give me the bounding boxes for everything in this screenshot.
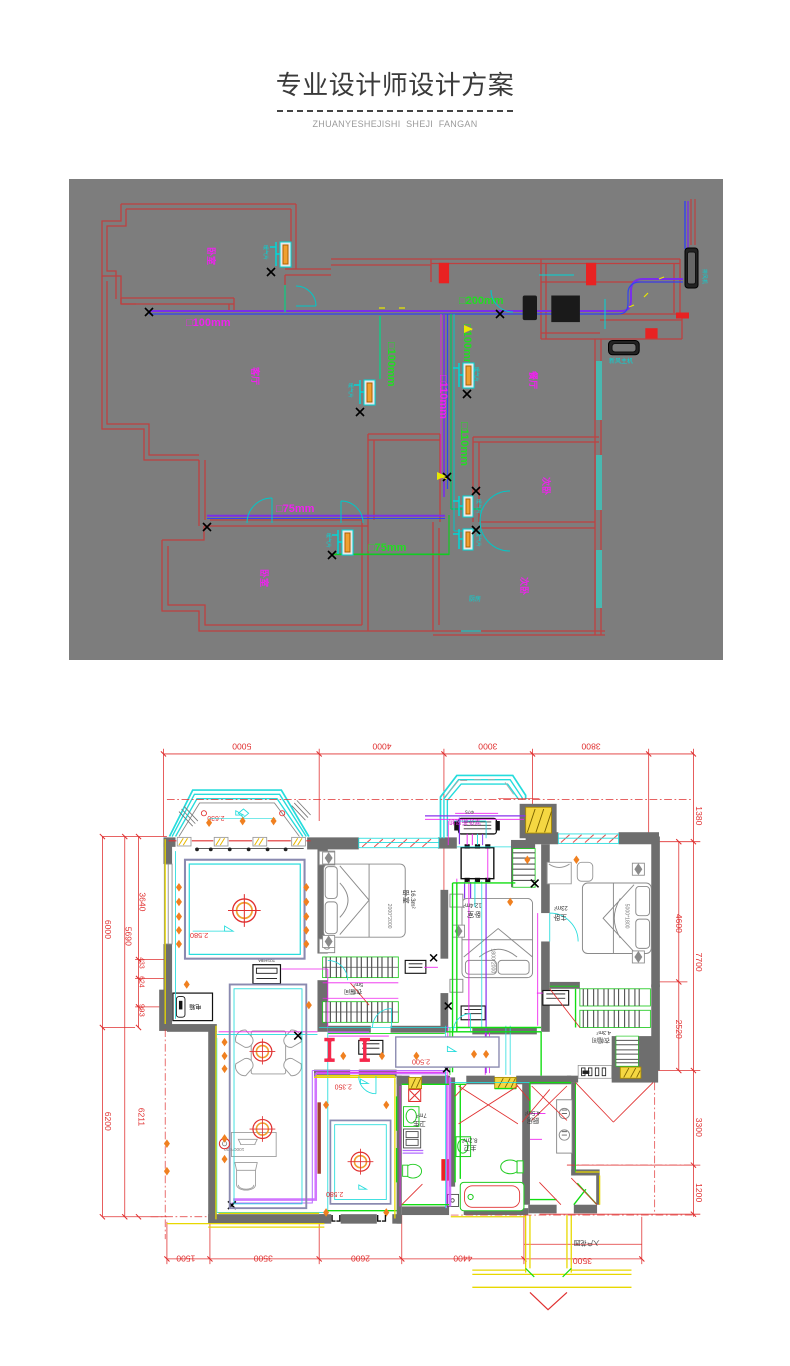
svg-text:次卧: 次卧 bbox=[541, 477, 552, 495]
svg-text:2600: 2600 bbox=[351, 1253, 370, 1263]
svg-text:入户花园: 入户花园 bbox=[574, 1239, 600, 1248]
svg-text:3800: 3800 bbox=[581, 742, 600, 752]
svg-text:□75mm: □75mm bbox=[368, 542, 407, 554]
svg-text:7700: 7700 bbox=[694, 953, 704, 972]
svg-text:6200: 6200 bbox=[103, 1112, 113, 1131]
svg-text:排风机: 排风机 bbox=[701, 269, 708, 284]
svg-text:主卫: 主卫 bbox=[463, 1144, 476, 1153]
svg-text:电箱: 电箱 bbox=[189, 1002, 201, 1010]
svg-text:4000: 4000 bbox=[372, 742, 391, 752]
svg-text:3300: 3300 bbox=[694, 1118, 704, 1137]
svg-text:暖气片: 暖气片 bbox=[325, 533, 332, 548]
svg-text:2.500: 2.500 bbox=[412, 1057, 430, 1066]
svg-text:衣帽间: 衣帽间 bbox=[344, 988, 362, 996]
svg-text:2000*2000: 2000*2000 bbox=[386, 904, 392, 929]
svg-text:16.3m²: 16.3m² bbox=[409, 890, 415, 909]
svg-text:1380: 1380 bbox=[694, 806, 704, 825]
svg-text:暖气片: 暖气片 bbox=[262, 245, 269, 260]
svg-text:5000: 5000 bbox=[232, 742, 251, 752]
svg-text:2.580: 2.580 bbox=[326, 1190, 343, 1197]
svg-text:624: 624 bbox=[137, 976, 144, 988]
svg-text:衣帽间: 衣帽间 bbox=[592, 1036, 610, 1044]
svg-text:8.2m²: 8.2m² bbox=[462, 1136, 477, 1142]
svg-text:客厅: 客厅 bbox=[250, 366, 261, 385]
svg-text:4600: 4600 bbox=[674, 914, 684, 933]
svg-text:12.4m²: 12.4m² bbox=[463, 902, 482, 908]
svg-text:□110mm: □110mm bbox=[458, 422, 470, 466]
svg-text:卧室: 卧室 bbox=[467, 910, 481, 919]
svg-text:4.5m²: 4.5m² bbox=[525, 1109, 540, 1115]
svg-text:4400: 4400 bbox=[453, 1253, 472, 1263]
svg-text:卫生: 卫生 bbox=[412, 1119, 425, 1128]
svg-text:□110mm: □110mm bbox=[437, 375, 449, 419]
svg-text:□100mm: □100mm bbox=[385, 342, 397, 387]
svg-text:993: 993 bbox=[137, 1004, 146, 1017]
svg-text:暖气片: 暖气片 bbox=[475, 532, 482, 547]
svg-text:2.580: 2.580 bbox=[190, 931, 208, 940]
svg-text:1500: 1500 bbox=[176, 1253, 195, 1263]
svg-text:5000*1800: 5000*1800 bbox=[623, 904, 629, 929]
svg-text:室外新风机: 室外新风机 bbox=[448, 818, 481, 827]
svg-text:5690: 5690 bbox=[124, 927, 134, 946]
svg-text:3500: 3500 bbox=[253, 1253, 272, 1263]
svg-text:3000: 3000 bbox=[478, 742, 497, 752]
svg-text:□75mm: □75mm bbox=[276, 503, 315, 515]
svg-text:暖气片: 暖气片 bbox=[347, 383, 354, 398]
svg-text:3500: 3500 bbox=[573, 1256, 592, 1266]
svg-text:餐厅: 餐厅 bbox=[528, 370, 539, 389]
svg-text:Φ75: Φ75 bbox=[465, 809, 474, 815]
svg-text:2520: 2520 bbox=[674, 1020, 684, 1039]
svg-text:6211: 6211 bbox=[137, 1108, 147, 1127]
svg-text:1200: 1200 bbox=[694, 1183, 704, 1202]
svg-text:卧室: 卧室 bbox=[259, 569, 270, 587]
svg-text:厨房: 厨房 bbox=[469, 595, 481, 603]
svg-text:暖气片: 暖气片 bbox=[473, 367, 480, 382]
svg-text:5m²: 5m² bbox=[353, 981, 363, 987]
svg-text:卧室: 卧室 bbox=[401, 890, 410, 904]
svg-text:6000: 6000 bbox=[103, 920, 113, 939]
svg-text:新风主机: 新风主机 bbox=[609, 357, 633, 365]
svg-text:次卧: 次卧 bbox=[519, 577, 530, 595]
svg-text:1800*2000: 1800*2000 bbox=[489, 948, 495, 973]
svg-text:7m²: 7m² bbox=[416, 1112, 426, 1118]
svg-text:4.3m²: 4.3m² bbox=[596, 1029, 610, 1035]
svg-text:3640: 3640 bbox=[137, 892, 147, 911]
svg-text:□100mm: □100mm bbox=[186, 317, 231, 329]
svg-text:卧室: 卧室 bbox=[206, 247, 217, 265]
svg-text:2.350: 2.350 bbox=[334, 1082, 351, 1089]
svg-text:主卧: 主卧 bbox=[553, 913, 567, 922]
svg-text:23m²: 23m² bbox=[554, 904, 568, 910]
svg-text:厨房: 厨房 bbox=[527, 1117, 540, 1126]
svg-text:433: 433 bbox=[137, 957, 144, 969]
